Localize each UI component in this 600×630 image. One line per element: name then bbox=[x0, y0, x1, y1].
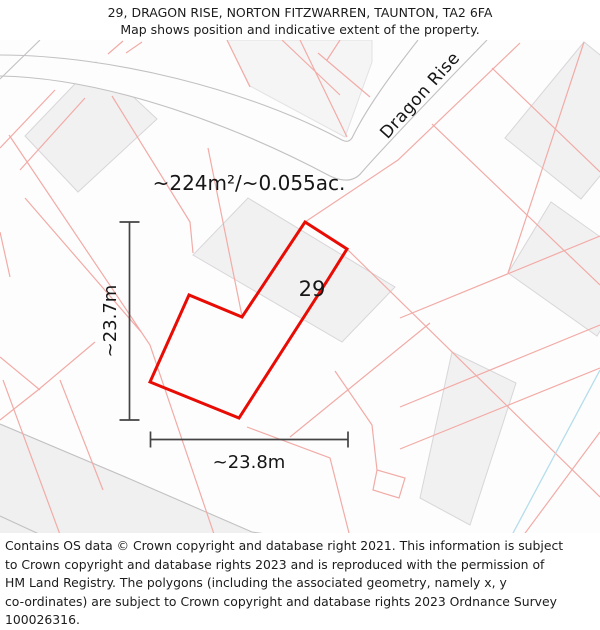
property-address-title: 29, DRAGON RISE, NORTON FITZWARREN, TAUN… bbox=[0, 5, 600, 22]
footer-line: HM Land Registry. The polygons (includin… bbox=[5, 574, 592, 593]
footer-line: Contains OS data © Crown copyright and d… bbox=[5, 537, 592, 556]
vertical-dimension-label: ~23.7m bbox=[100, 285, 121, 358]
plot-number-label: 29 bbox=[299, 277, 326, 301]
footer-line: co-ordinates) are subject to Crown copyr… bbox=[5, 593, 592, 612]
footer-line: 100026316. bbox=[5, 611, 592, 630]
map: Dragon Rise ~224m²/~0.055ac. 29 ~23.7m ~… bbox=[0, 40, 600, 533]
map-subtitle: Map shows position and indicative extent… bbox=[0, 22, 600, 39]
copyright-footer: Contains OS data © Crown copyright and d… bbox=[0, 533, 600, 625]
horizontal-dimension-label: ~23.8m bbox=[213, 452, 286, 473]
footer-line: to Crown copyright and database rights 2… bbox=[5, 556, 592, 575]
area-label: ~224m²/~0.055ac. bbox=[153, 171, 346, 195]
map-canvas: Dragon Rise ~224m²/~0.055ac. 29 ~23.7m ~… bbox=[0, 40, 600, 533]
map-title-block: 29, DRAGON RISE, NORTON FITZWARREN, TAUN… bbox=[0, 0, 600, 40]
